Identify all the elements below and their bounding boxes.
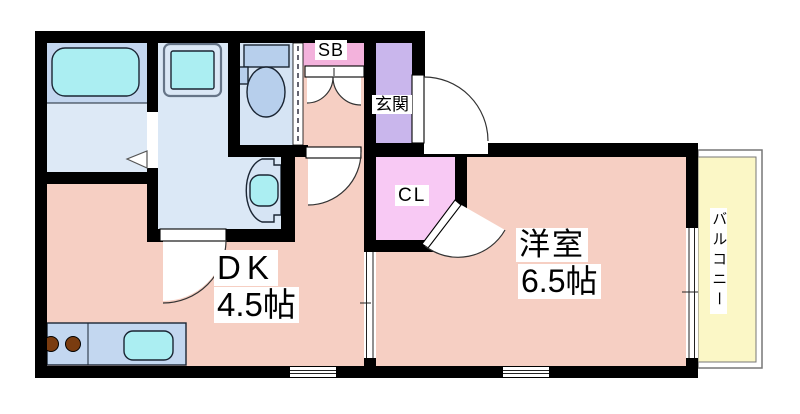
kitchen-counter-icon xyxy=(44,323,187,365)
western-room-label: 洋室 xyxy=(516,228,588,262)
toilet-bowl xyxy=(247,67,285,117)
balcony-label: バルコニー xyxy=(710,208,727,314)
western-room-size: 6.5帖 xyxy=(518,264,601,299)
dk-room-label: DK xyxy=(214,250,278,286)
toilet-sliding-door xyxy=(293,43,303,145)
door-opening xyxy=(147,112,158,168)
western-room-window xyxy=(503,367,549,377)
wall xyxy=(35,31,47,378)
washing-machine-icon xyxy=(171,51,214,89)
door-leaf xyxy=(306,147,361,158)
balcony-area xyxy=(698,150,762,368)
dk-room-size: 4.5帖 xyxy=(214,287,299,323)
window xyxy=(290,367,336,377)
genkan-floor xyxy=(376,43,412,143)
floorplan: DK 4.5帖 洋室 6.5帖 玄関 CL SB バルコニー xyxy=(0,0,800,414)
wall xyxy=(364,43,376,252)
door-leaf xyxy=(160,229,226,241)
wall xyxy=(412,31,425,77)
toilet-tank xyxy=(244,45,289,67)
door-leaf xyxy=(412,75,424,143)
washbasin-bowl xyxy=(250,175,278,206)
door-opening xyxy=(424,143,488,154)
kitchen-sink-icon xyxy=(124,331,173,360)
dk-window xyxy=(290,367,336,377)
entrance-label: 玄関 xyxy=(372,95,412,114)
window xyxy=(503,367,549,377)
door-swing xyxy=(424,77,488,141)
closet-label: CL xyxy=(395,185,429,206)
wall xyxy=(228,31,240,157)
entrance-door xyxy=(412,75,488,154)
wall xyxy=(35,172,158,184)
washbasin-icon xyxy=(246,159,281,222)
window xyxy=(686,228,698,358)
wall xyxy=(686,143,698,228)
wall xyxy=(281,157,295,241)
wall xyxy=(364,143,698,157)
stove-burner-icon xyxy=(66,337,81,352)
wall xyxy=(364,358,376,378)
bathtub-icon xyxy=(52,48,139,96)
floorplan-drawing xyxy=(0,0,800,414)
sliding-door xyxy=(364,252,376,358)
shoebox-label: SB xyxy=(315,40,347,60)
